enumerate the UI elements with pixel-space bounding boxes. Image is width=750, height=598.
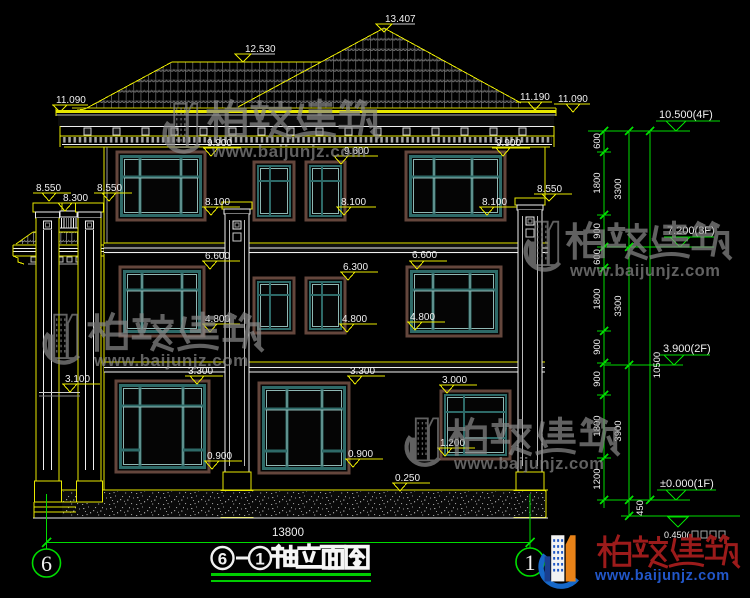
svg-text:8.100: 8.100 — [482, 197, 507, 208]
svg-text:1: 1 — [525, 550, 536, 575]
svg-text:www.baijunjz.com: www.baijunjz.com — [569, 262, 720, 280]
svg-text:13.407: 13.407 — [385, 14, 416, 25]
svg-text:6: 6 — [41, 551, 52, 576]
svg-text:11.090: 11.090 — [56, 95, 86, 106]
svg-text:10500: 10500 — [652, 352, 663, 378]
svg-text:±0.000(1F): ±0.000(1F) — [660, 478, 714, 490]
svg-text:11.090: 11.090 — [558, 94, 588, 105]
svg-text:3.300: 3.300 — [350, 366, 375, 377]
svg-text:4.800: 4.800 — [410, 312, 435, 323]
svg-text:3300: 3300 — [613, 178, 624, 199]
svg-text:6.600: 6.600 — [412, 250, 437, 261]
svg-text:600: 600 — [592, 133, 603, 149]
svg-text:900: 900 — [592, 339, 603, 355]
svg-text:0.900: 0.900 — [207, 451, 232, 462]
svg-text:3.900(2F): 3.900(2F) — [663, 343, 711, 355]
svg-text:450: 450 — [635, 500, 646, 516]
svg-text:3300: 3300 — [613, 295, 624, 316]
svg-text:www.baijunjz.com: www.baijunjz.com — [453, 455, 604, 473]
svg-text:1: 1 — [255, 550, 264, 569]
svg-text:6.600: 6.600 — [205, 251, 230, 262]
svg-text:3.000: 3.000 — [442, 375, 467, 386]
svg-text:6.300: 6.300 — [343, 262, 368, 273]
svg-text:13800: 13800 — [272, 527, 304, 539]
svg-text:9.900: 9.900 — [496, 138, 521, 149]
svg-text:www.baijunjz.com: www.baijunjz.com — [93, 351, 249, 370]
svg-text:8.550: 8.550 — [97, 183, 122, 194]
svg-text:www.baijunjz.com: www.baijunjz.com — [594, 568, 730, 584]
svg-text:8.300: 8.300 — [63, 193, 88, 204]
svg-text:www.baijunjz.com: www.baijunjz.com — [211, 142, 367, 161]
svg-text:0.900: 0.900 — [348, 449, 373, 460]
svg-text:8.550: 8.550 — [537, 184, 562, 195]
svg-text:4.800: 4.800 — [342, 314, 367, 325]
svg-text:1800: 1800 — [592, 172, 603, 193]
svg-text:12.530: 12.530 — [245, 44, 276, 55]
svg-text:8.100: 8.100 — [341, 197, 366, 208]
svg-text:3.100: 3.100 — [65, 374, 90, 385]
svg-text:1800: 1800 — [592, 288, 603, 309]
svg-text:0.250: 0.250 — [395, 473, 420, 484]
svg-text:8.550: 8.550 — [36, 183, 61, 194]
svg-text:6: 6 — [218, 550, 227, 569]
svg-text:900: 900 — [592, 371, 603, 387]
svg-text:8.100: 8.100 — [205, 197, 230, 208]
svg-text:10.500(4F): 10.500(4F) — [659, 109, 713, 121]
svg-text:11.190: 11.190 — [520, 92, 550, 103]
